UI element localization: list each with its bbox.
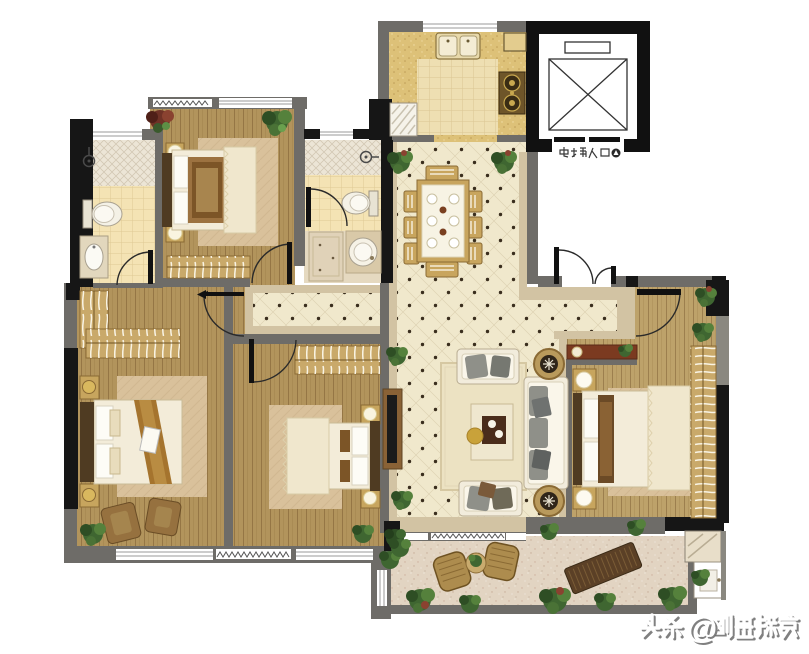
svg-text:@: @ bbox=[687, 610, 717, 645]
